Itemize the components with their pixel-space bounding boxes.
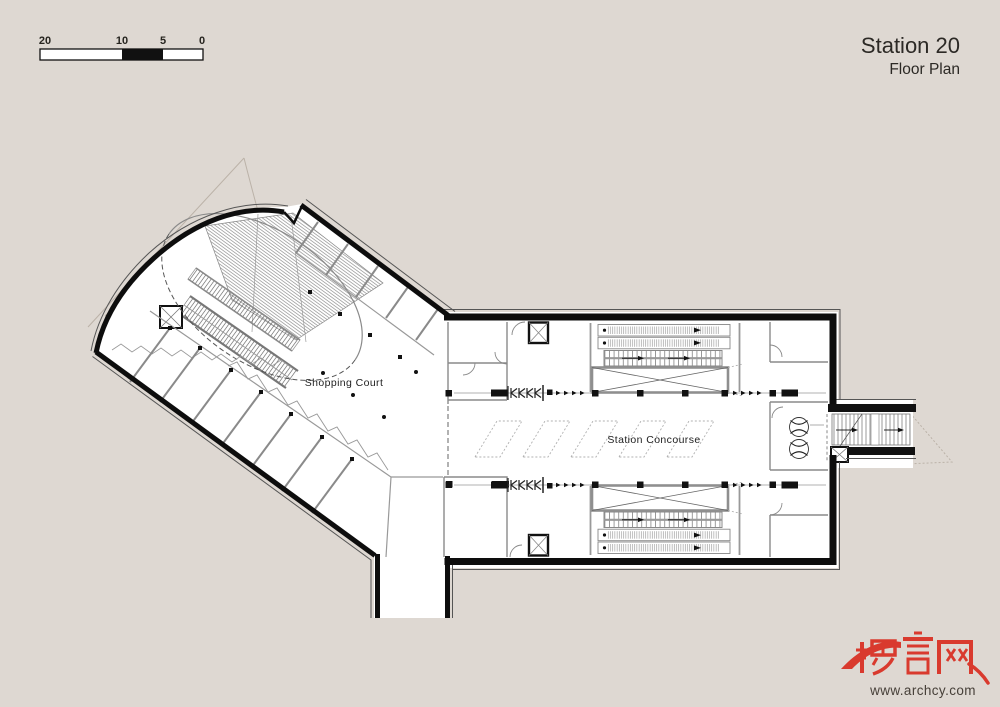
entrance-wall-bottom bbox=[849, 447, 915, 455]
elevator-concourse-top bbox=[529, 323, 548, 344]
title-block: Station 20 Floor Plan bbox=[861, 33, 960, 78]
elevator-court bbox=[160, 306, 182, 328]
watermark-logo: www.archcy.com bbox=[841, 633, 988, 698]
shopping-court-label: Shopping Court bbox=[305, 377, 384, 389]
page-subtitle: Floor Plan bbox=[889, 61, 960, 78]
scale-label-10: 10 bbox=[116, 35, 128, 47]
station-concourse-label: Station Concourse bbox=[607, 434, 700, 446]
floor-plan-drawing: Shopping Court Station Concourse 20 10 5… bbox=[0, 0, 1000, 707]
entrance-wall-top bbox=[828, 404, 916, 412]
scale-bar: 20 10 5 0 bbox=[39, 35, 205, 60]
scale-label-20: 20 bbox=[39, 35, 51, 47]
watermark-url: www.archcy.com bbox=[869, 683, 976, 698]
scale-label-0: 0 bbox=[199, 35, 205, 47]
watermark-logo-icon bbox=[841, 633, 988, 683]
page-title: Station 20 bbox=[861, 33, 960, 58]
floor-plan-page: 畅言网 bbox=[0, 0, 1000, 707]
elevator-concourse-bottom bbox=[529, 535, 548, 556]
scale-label-5: 5 bbox=[160, 35, 166, 47]
